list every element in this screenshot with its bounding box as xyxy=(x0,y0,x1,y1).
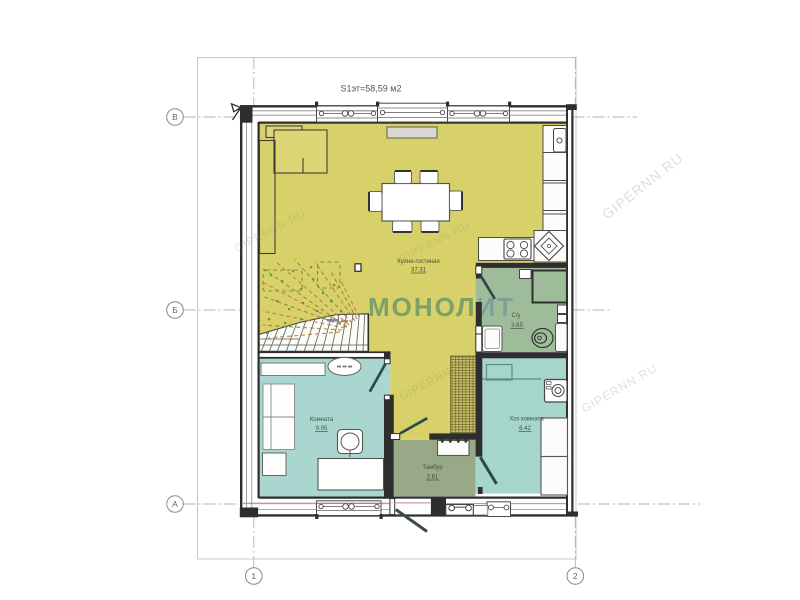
svg-text:МОНОЛИТ: МОНОЛИТ xyxy=(368,292,515,322)
svg-text:2: 2 xyxy=(573,571,578,581)
svg-text:6.42: 6.42 xyxy=(519,426,531,432)
svg-text:S1эт=58,59 м2: S1эт=58,59 м2 xyxy=(341,84,402,94)
svg-text:2.61: 2.61 xyxy=(427,475,439,481)
svg-text:Комната: Комната xyxy=(310,417,334,423)
svg-text:1: 1 xyxy=(251,571,256,581)
svg-text:3.65: 3.65 xyxy=(511,323,523,329)
svg-text:37.31: 37.31 xyxy=(411,268,427,274)
svg-text:Кухня-гостиная: Кухня-гостиная xyxy=(397,259,439,265)
svg-text:С/у: С/у xyxy=(512,313,521,319)
svg-text:Тамбур: Тамбур xyxy=(422,465,443,471)
svg-text:Б: Б xyxy=(172,305,178,315)
svg-text:9.95: 9.95 xyxy=(316,426,328,432)
svg-text:А: А xyxy=(172,499,178,509)
svg-text:В: В xyxy=(172,112,178,122)
svg-text:Хоз комната: Хоз комната xyxy=(509,417,544,423)
